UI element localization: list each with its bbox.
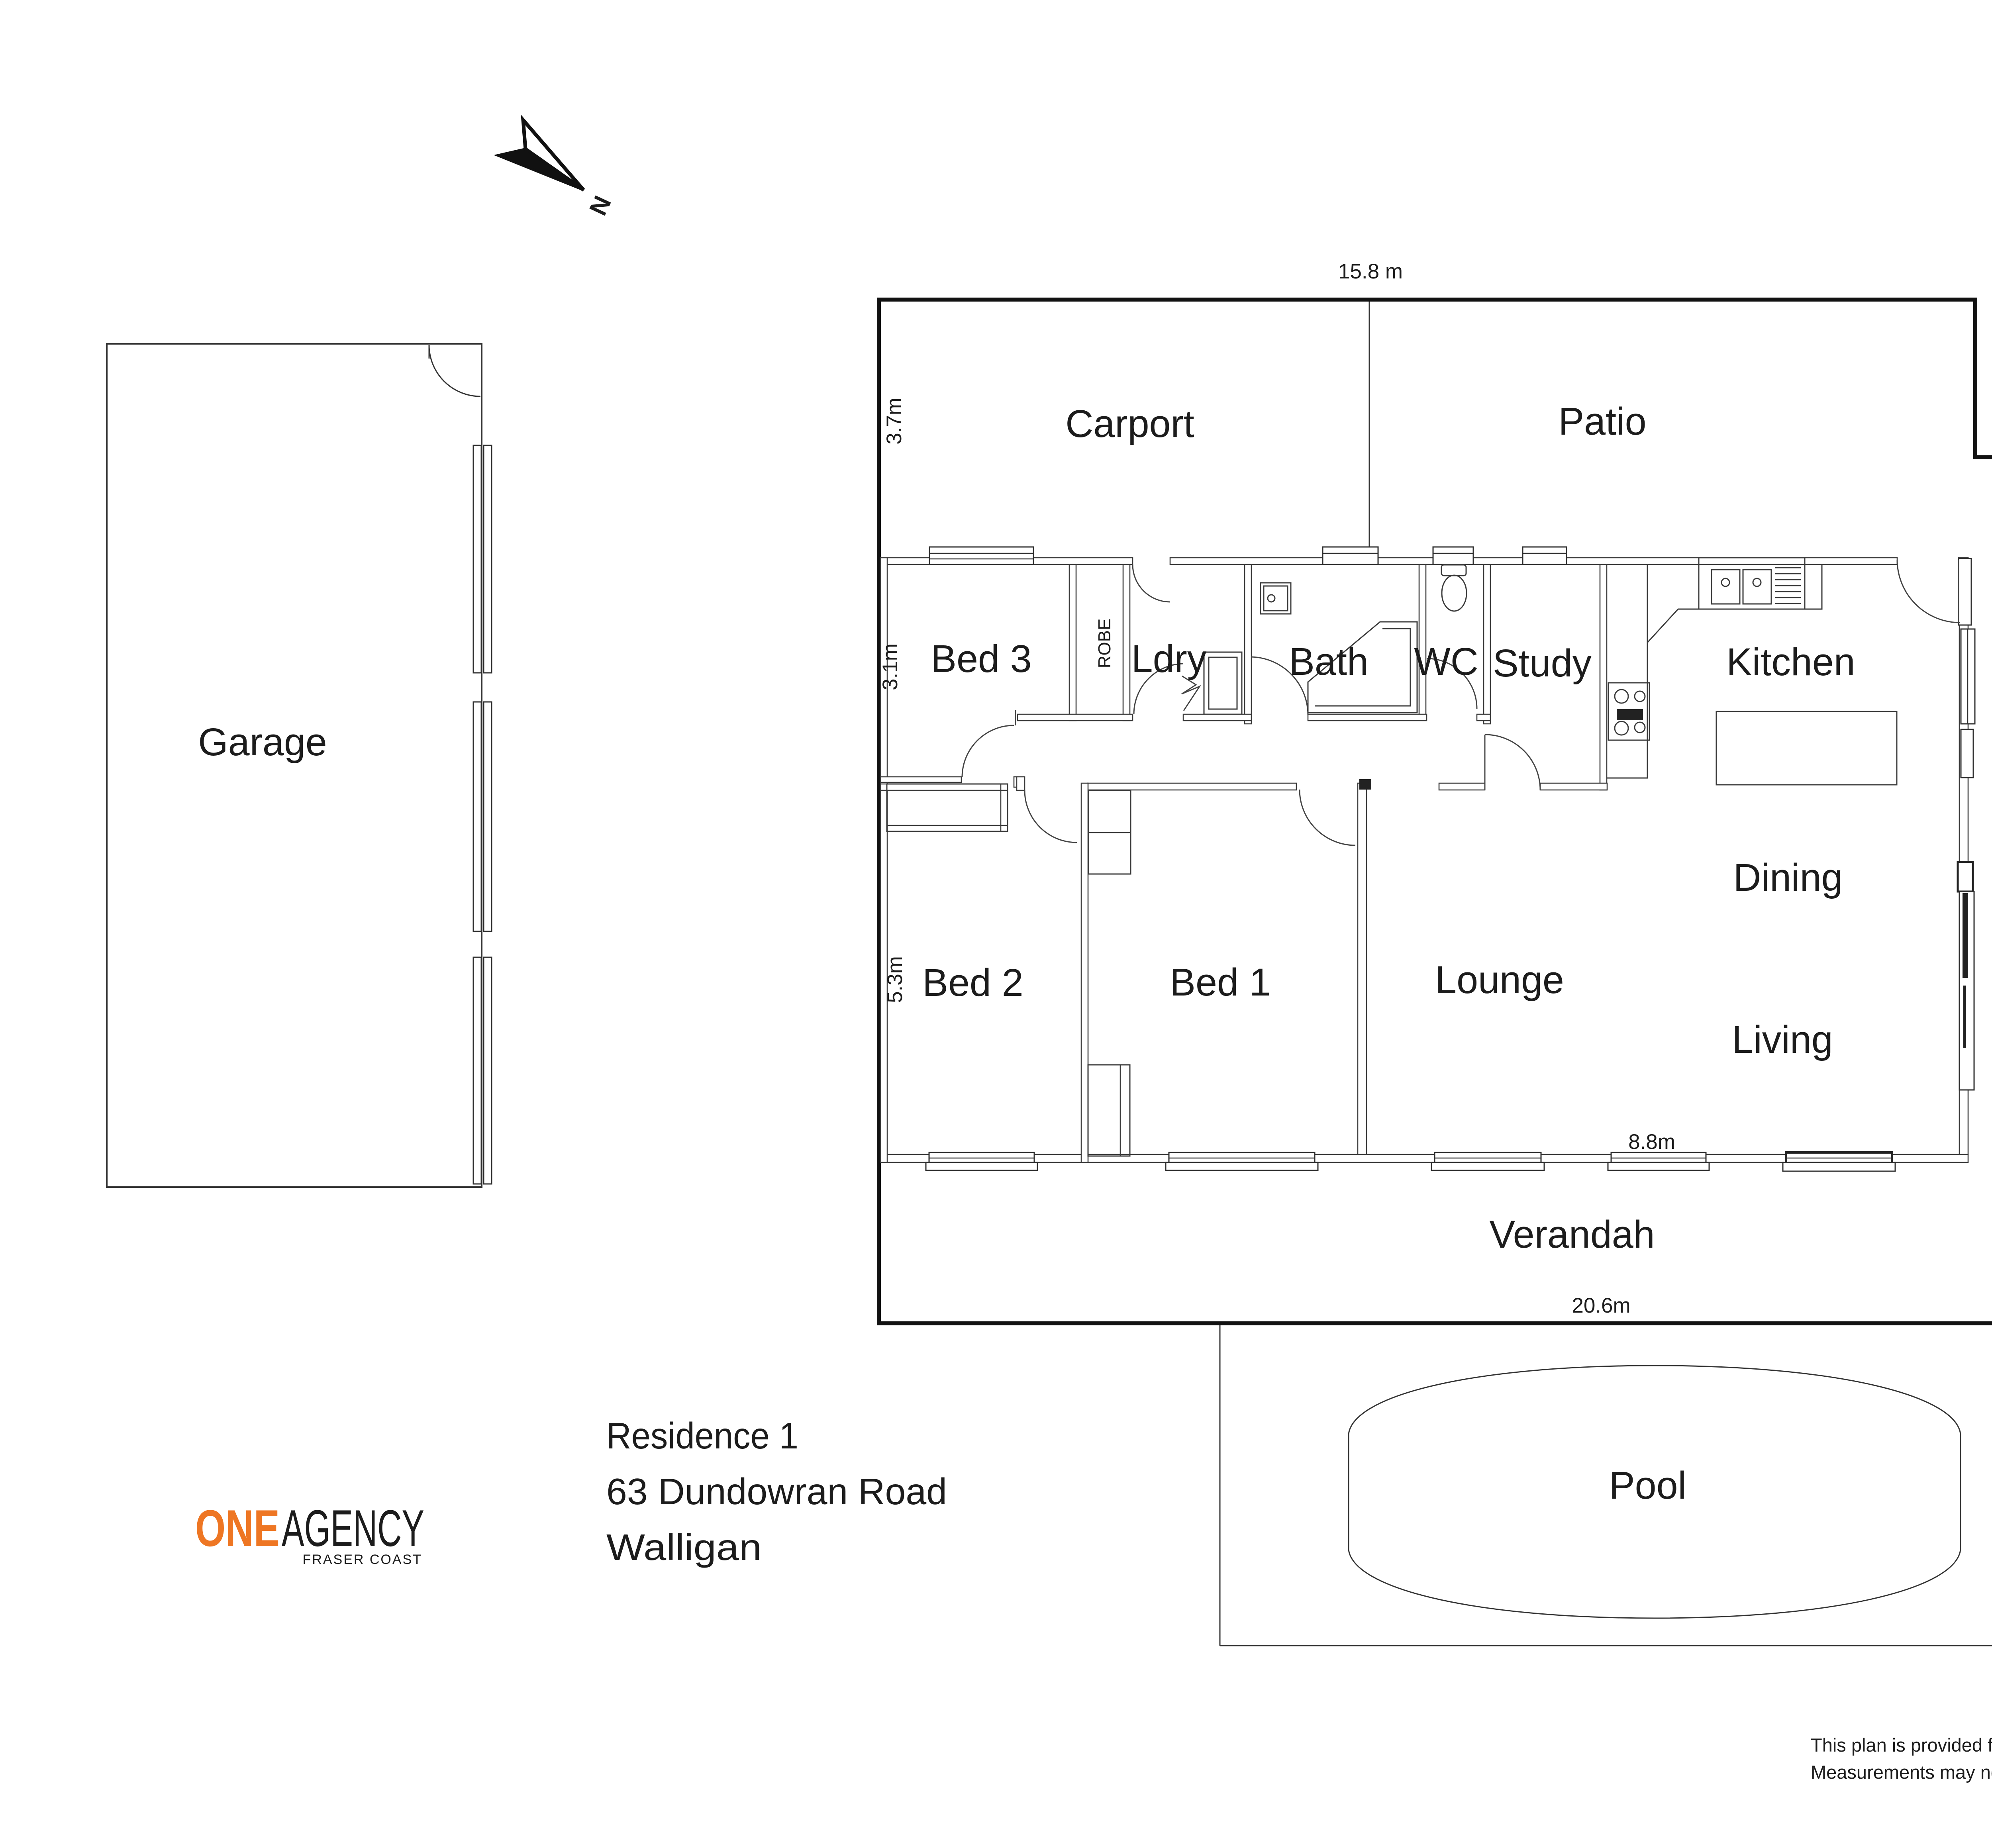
svg-text:WC: WC <box>1414 640 1478 683</box>
svg-text:Ldry: Ldry <box>1131 637 1207 680</box>
svg-text:15.8 m: 15.8 m <box>1338 260 1403 283</box>
svg-text:Walligan: Walligan <box>606 1527 762 1568</box>
svg-text:Garage: Garage <box>198 720 327 764</box>
svg-text:Bed 3: Bed 3 <box>931 637 1032 680</box>
svg-text:Bath: Bath <box>1289 640 1369 683</box>
svg-text:8.8m: 8.8m <box>1628 1130 1675 1154</box>
svg-text:Bed 1: Bed 1 <box>1170 960 1271 1004</box>
svg-text:Bed 2: Bed 2 <box>922 961 1023 1004</box>
svg-text:Residence 1: Residence 1 <box>606 1415 798 1456</box>
svg-text:FRASER COAST: FRASER COAST <box>303 1552 422 1567</box>
svg-text:Dining: Dining <box>1733 856 1843 899</box>
svg-text:Measurements may not be exact.: Measurements may not be exact. <box>1811 1762 1992 1783</box>
svg-text:ROBE: ROBE <box>1095 619 1114 668</box>
svg-text:AGENCY: AGENCY <box>282 1499 424 1557</box>
svg-text:Living: Living <box>1732 1018 1833 1061</box>
svg-text:Lounge: Lounge <box>1435 958 1564 1001</box>
svg-text:20.6m: 20.6m <box>1572 1294 1630 1317</box>
svg-text:Kitchen: Kitchen <box>1726 640 1855 684</box>
svg-text:Patio: Patio <box>1558 400 1646 443</box>
svg-text:ONE: ONE <box>195 1499 280 1557</box>
svg-text:5.3m: 5.3m <box>883 956 907 1003</box>
svg-text:Pool: Pool <box>1609 1464 1686 1507</box>
svg-text:Carport: Carport <box>1065 402 1194 445</box>
svg-text:Verandah: Verandah <box>1489 1213 1655 1256</box>
svg-text:This plan is provided for indi: This plan is provided for indicative pur… <box>1811 1734 1992 1756</box>
svg-text:3.7m: 3.7m <box>882 398 906 445</box>
svg-text:63 Dundowran Road: 63 Dundowran Road <box>606 1471 947 1512</box>
svg-text:Study: Study <box>1493 641 1592 685</box>
svg-text:3.1m: 3.1m <box>878 643 902 690</box>
